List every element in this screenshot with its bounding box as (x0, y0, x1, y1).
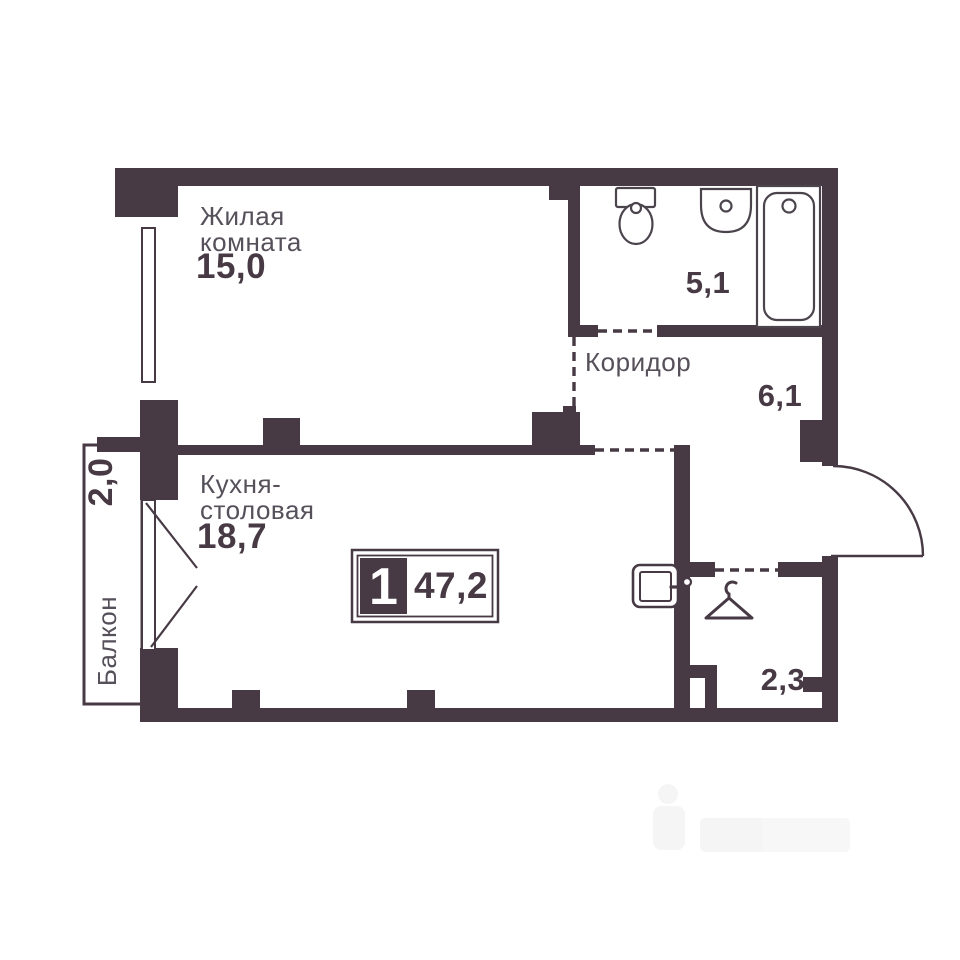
balcony-door (142, 500, 197, 650)
wall-top (140, 168, 838, 186)
kitchen-top-wall (178, 445, 595, 455)
bathtub-icon (757, 186, 820, 327)
toilet-icon (616, 188, 655, 244)
wall-right-upper (822, 186, 838, 466)
entrance-door (831, 466, 923, 556)
entrance-door-stub (800, 420, 822, 462)
wall-bottom (140, 708, 838, 722)
wardrobe-top-wall-right (778, 562, 822, 577)
badge-rooms-count: 1 (369, 558, 398, 616)
bathroom-bottom-wall-left (568, 325, 598, 337)
badge-total-area: 47,2 (414, 565, 488, 606)
wall-top-left-pier (115, 168, 140, 217)
wardrobe-top-wall-left (690, 562, 715, 577)
corridor-area: 6,1 (758, 378, 803, 413)
bottom-pilaster-1 (232, 690, 260, 708)
living-room-area: 15,0 (196, 247, 266, 286)
living-room-window (142, 228, 155, 382)
bottom-pilaster-2 (407, 690, 435, 708)
sink-icon (701, 189, 751, 232)
bathroom-left-wall (568, 186, 580, 325)
wardrobe-divider-lower-left (674, 678, 690, 708)
balcony-label: Балкон (92, 596, 122, 686)
wardrobe-area: 2,3 (761, 662, 806, 697)
bathroom-area: 5,1 (686, 265, 731, 300)
living-kitchen-corner-block (532, 412, 580, 445)
bathroom-left-top-stub (549, 186, 580, 200)
wall-right-lower (822, 556, 838, 708)
kitchen-area: 18,7 (197, 517, 267, 556)
wardrobe-divider-stub (690, 665, 717, 678)
watermark (653, 784, 850, 852)
corridor-label: Коридор (585, 347, 691, 377)
bathroom-fixtures (616, 186, 820, 327)
floor-plan-svg: Жилая комната 15,0 5,1 Коридор 6,1 Кухня… (0, 0, 960, 960)
balcony-area: 2,0 (82, 458, 120, 507)
balcony-junction-pier (97, 437, 140, 452)
wall-right-step (803, 677, 822, 692)
floor-plan: Жилая комната 15,0 5,1 Коридор 6,1 Кухня… (0, 0, 960, 960)
wall-left-upper (140, 186, 178, 217)
living-kitchen-corner-notch (563, 406, 576, 412)
apartment-badge: 1 47,2 (352, 550, 498, 622)
wardrobe-divider-wall (674, 445, 690, 678)
wardrobe-divider-lower-right (705, 678, 717, 708)
wall-left-mid (140, 400, 178, 500)
living-room-stub (263, 418, 300, 445)
door-swing-arc (833, 466, 923, 556)
hanger-icon (706, 582, 752, 618)
